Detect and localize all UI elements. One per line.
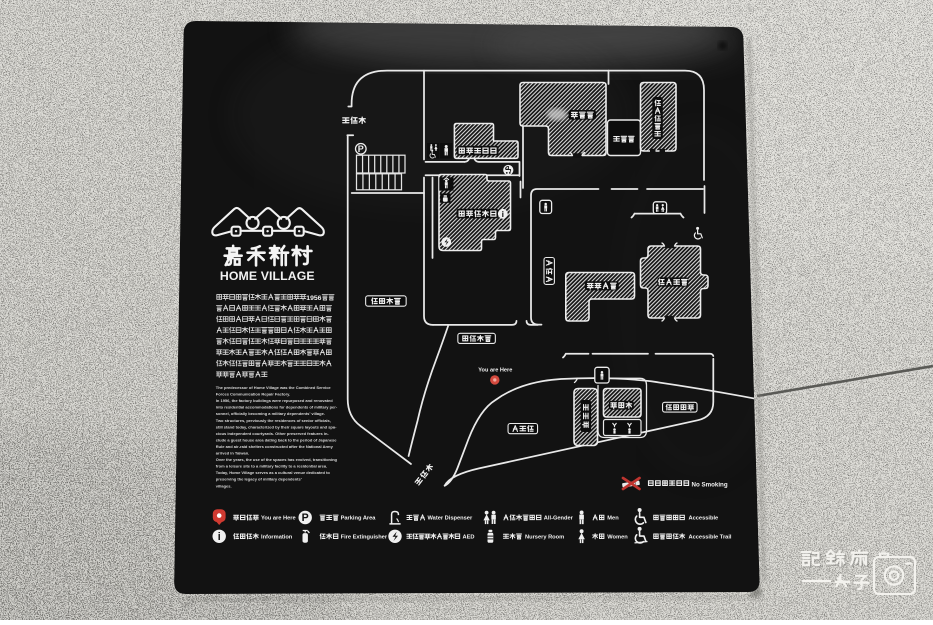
svg-text:Parking Area: Parking Area: [341, 516, 377, 522]
svg-text:Accessible Trail: Accessible Trail: [689, 535, 732, 541]
svg-text:villages.: villages.: [216, 483, 232, 488]
svg-text:Water Dispenser: Water Dispenser: [428, 516, 473, 522]
svg-text:All-Gender: All-Gender: [544, 516, 574, 522]
svg-text:Forces Communication Repair Fa: Forces Communication Repair Factory.: [216, 392, 290, 397]
svg-text:Two structures, previously the: Two structures, previously the residence…: [216, 418, 331, 423]
svg-text:In 1956, the factory buildings: In 1956, the factory buildings were repu…: [216, 398, 333, 403]
svg-text:HOME VILLAGE: HOME VILLAGE: [220, 269, 315, 283]
svg-text:Rule and air-raid shelters con: Rule and air-raid shelters constructed a…: [216, 444, 334, 449]
svg-text:i: i: [502, 209, 504, 219]
svg-text:Accessible: Accessible: [689, 516, 719, 522]
svg-text:preserving the legacy of milit: preserving the legacy of military depend…: [216, 477, 302, 482]
svg-text:Over the years, the use of the: Over the years, the use of the spaces ha…: [216, 457, 338, 462]
svg-text:P: P: [302, 512, 309, 524]
svg-text:1956: 1956: [306, 295, 321, 302]
svg-text:The predecessor of Home Villag: The predecessor of Home Village was the …: [216, 385, 332, 390]
svg-text:Information: Information: [261, 535, 293, 541]
svg-text:still stand today, characteriz: still stand today, characterized by thei…: [216, 424, 337, 429]
svg-text:Today, Home Village serves as: Today, Home Village serves as a cultural…: [216, 470, 331, 475]
svg-text:into residential accommodation: into residential accommodations for depe…: [216, 405, 338, 410]
svg-text:You are Here: You are Here: [261, 516, 296, 522]
svg-text:clude a guest house area datin: clude a guest house area dating back to …: [216, 437, 337, 442]
svg-text:cious independent courtyards.: cious independent courtyards. Other pres…: [216, 431, 330, 436]
svg-text:Nursery Room: Nursery Room: [525, 535, 564, 541]
svg-text:Fire Extinguisher: Fire Extinguisher: [341, 535, 388, 541]
svg-text:No Smoking: No Smoking: [692, 481, 728, 488]
svg-text:P: P: [358, 144, 364, 154]
svg-text:AED: AED: [463, 535, 475, 541]
svg-text:arrived in Taiwan.: arrived in Taiwan.: [216, 451, 250, 456]
svg-text:i: i: [218, 531, 221, 543]
svg-text:sonnel, officially becoming a: sonnel, officially becoming a military d…: [216, 411, 325, 416]
svg-text:Women: Women: [607, 535, 628, 541]
svg-text:from a leisure site to a milit: from a leisure site to a military facili…: [216, 464, 327, 469]
svg-text:Men: Men: [607, 516, 619, 522]
svg-text:You are Here: You are Here: [478, 368, 512, 374]
